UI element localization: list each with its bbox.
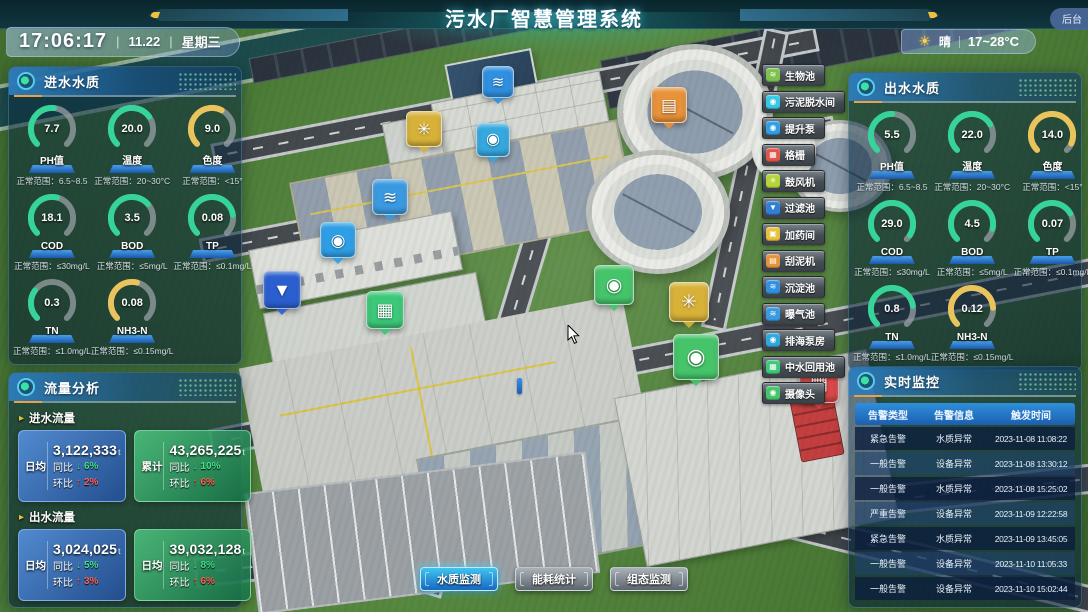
legend-item-sedimentation-pool[interactable]: ≋ 沉淀池 xyxy=(762,276,825,298)
flow-unit: t xyxy=(243,546,245,556)
tab-energy-stats[interactable]: 能耗统计 xyxy=(515,567,593,591)
gauge-tn: 0.8 TN 正常范围：≤1.0mg/L xyxy=(853,282,931,363)
flow-sections: ▸ 进水流量 日均 3,122,333 t 同比 ↓ 6% 环比 ↑ 2% 累计… xyxy=(9,410,241,601)
gauge-ph: 5.5 PH值 正常范围：6.5~8.5 xyxy=(853,108,931,193)
marker-pointer xyxy=(379,329,391,341)
legend-facility-icon: ◉ xyxy=(766,333,780,347)
gauge-dial: 3.5 xyxy=(105,191,159,245)
marker-sedimentation-pool[interactable]: ≋ xyxy=(482,66,514,110)
alarm-time: 2023-11-09 13:45:05 xyxy=(987,534,1075,544)
arrow-up-icon: ↑ xyxy=(192,576,197,587)
legend-item-camera[interactable]: ◉ 摄像头 xyxy=(762,382,825,404)
alarm-info: 水质异常 xyxy=(921,432,987,445)
gauge-value: 29.0 xyxy=(865,197,919,251)
alarm-time: 2023-11-08 13:30:12 xyxy=(987,459,1075,469)
marker-pointer xyxy=(683,322,695,334)
flow-card-tag: 日均 xyxy=(24,558,47,573)
gauge-label: TN xyxy=(885,332,898,343)
legend-label: 沉淀池 xyxy=(785,280,815,295)
legend-item-lift-pump[interactable]: ◉ 提升泵 xyxy=(762,117,825,139)
gauge-label: BOD xyxy=(961,247,983,258)
marker-pointer xyxy=(813,403,825,415)
marker-glyph: ≋ xyxy=(383,189,397,206)
yoy-label: 同比 xyxy=(53,558,73,573)
gauge-chroma: 9.0 色度 正常范围：<15° xyxy=(174,102,252,187)
clock-separator: | xyxy=(169,34,172,49)
legend-item-sea-discharge-pump-house[interactable]: ◉ 排海泵房 xyxy=(762,329,835,351)
legend-label: 曝气池 xyxy=(785,306,815,321)
legend-label: 格栅 xyxy=(785,147,805,162)
mom-value: 6% xyxy=(200,477,214,488)
marker-icon-box: ◉ xyxy=(673,334,719,380)
flow-section-label: ▸ 出水流量 xyxy=(19,509,241,525)
panel-title: 实时监控 xyxy=(884,372,940,391)
legend-item-aeration-pool[interactable]: ≋ 曝气池 xyxy=(762,303,825,325)
gauge-bod: 3.5 BOD 正常范围：≤5mg/L xyxy=(91,191,174,272)
panel-header-icon xyxy=(17,72,35,90)
yoy-value: 10% xyxy=(200,461,220,472)
legend-label: 提升泵 xyxy=(785,121,815,136)
gauge-ph: 7.7 PH值 正常范围：6.5~8.5 xyxy=(13,102,91,187)
gauge-normal-range: 正常范围：20~30°C xyxy=(94,175,170,187)
gauge-value: 0.07 xyxy=(1025,197,1079,251)
legend-facility-icon: ▼ xyxy=(766,201,780,215)
title-wing-right xyxy=(740,9,940,21)
legend-facility-icon: ▣ xyxy=(766,227,780,241)
weather-widget: ☀ 晴 17~28°C xyxy=(901,29,1036,54)
panel-header: 实时监控 xyxy=(849,367,1081,395)
gauge-value: 18.1 xyxy=(25,191,79,245)
legend-facility-icon: ≋ xyxy=(766,307,780,321)
yoy-label: 同比 xyxy=(169,459,189,474)
gauge-dial: 0.08 xyxy=(185,191,239,245)
marker-icon-box: ✳ xyxy=(669,282,709,322)
flow-section: ▸ 进水流量 日均 3,122,333 t 同比 ↓ 6% 环比 ↑ 2% 累计… xyxy=(9,410,241,502)
legend-label: 加药间 xyxy=(785,227,815,242)
gauge-normal-range: 正常范围：≤5mg/L xyxy=(97,260,168,272)
panel-title: 流量分析 xyxy=(44,378,100,397)
gauge-normal-range: 正常范围：<15° xyxy=(182,175,242,187)
panel-header: 出水水质 xyxy=(849,73,1081,101)
gauge-cod: 29.0 COD 正常范围：≤30mg/L xyxy=(853,197,931,278)
mom-value: 6% xyxy=(200,576,214,587)
flow-section-title: 进水流量 xyxy=(29,410,75,426)
marker-icon-box: ◉ xyxy=(476,123,510,157)
legend-label: 生物池 xyxy=(785,68,815,83)
yoy-label: 同比 xyxy=(53,459,73,474)
gauge-value: 22.0 xyxy=(945,108,999,162)
gauge-value: 20.0 xyxy=(105,102,159,156)
flow-card-tag: 日均 xyxy=(24,459,47,474)
marker-pump-2[interactable]: ◉ xyxy=(320,222,356,270)
gauge-value: 4.5 xyxy=(945,197,999,251)
gauge-dial: 0.12 xyxy=(945,282,999,336)
legend-label: 中水回用池 xyxy=(785,359,835,374)
legend-item-water-reuse-pool[interactable]: ▦ 中水回用池 xyxy=(762,356,845,378)
backend-button[interactable]: 后台 xyxy=(1050,8,1088,30)
gauge-cod: 18.1 COD 正常范围：≤30mg/L xyxy=(13,191,91,272)
panel-outlet-quality: 出水水质 5.5 PH值 正常范围：6.5~8.5 22.0 温度 正常范围：2… xyxy=(848,72,1082,371)
gauge-label: 温度 xyxy=(122,152,142,167)
gauge-value: 7.7 xyxy=(25,102,79,156)
yoy-label: 同比 xyxy=(169,558,189,573)
gauge-value: 3.5 xyxy=(105,191,159,245)
flow-unit: t xyxy=(243,447,245,457)
alarm-row[interactable]: 一般告警 水质异常 2023-11-08 15:25:02 xyxy=(855,477,1075,500)
flow-unit: t xyxy=(118,546,120,556)
flow-card-body: 43,265,225 t 同比 ↓ 10% 环比 ↑ 6% xyxy=(163,442,244,490)
marker-icon-box: ≋ xyxy=(482,66,514,98)
gauge-label: NH3-N xyxy=(957,332,988,343)
legend-item-sludge-dewatering-room[interactable]: ◉ 污泥脱水间 xyxy=(762,91,845,113)
flow-stat-card: 日均 3,024,025 t 同比 ↓ 5% 环比 ↑ 3% xyxy=(18,529,126,601)
alarm-time: 2023-11-10 15:02:44 xyxy=(987,584,1075,594)
gauge-normal-range: 正常范围：≤1.0mg/L xyxy=(13,345,91,357)
yoy-value: 8% xyxy=(200,560,214,571)
alarm-type: 一般告警 xyxy=(855,557,921,570)
marker-glyph: ◉ xyxy=(606,276,623,295)
marker-glyph: ≋ xyxy=(492,75,505,90)
gauge-tn: 0.3 TN 正常范围：≤1.0mg/L xyxy=(13,276,91,357)
alarm-type: 一般告警 xyxy=(855,482,921,495)
alarm-row[interactable]: 紧急告警 水质异常 2023-11-08 11:08:22 xyxy=(855,427,1075,450)
panel-title: 进水水质 xyxy=(44,72,100,91)
gauge-value: 14.0 xyxy=(1025,108,1079,162)
arrow-up-icon: ↑ xyxy=(76,576,81,587)
arrow-up-icon: ↑ xyxy=(76,477,81,488)
gauge-tp: 0.08 TP 正常范围：≤0.1mg/L xyxy=(174,191,252,272)
flow-stat-card: 日均 3,122,333 t 同比 ↓ 6% 环比 ↑ 2% xyxy=(18,430,126,502)
outlet-gauge-grid: 5.5 PH值 正常范围：6.5~8.5 22.0 温度 正常范围：20~30°… xyxy=(849,103,1081,370)
alarm-col-type: 告警类型 xyxy=(855,407,921,422)
arrow-up-icon: ↑ xyxy=(192,477,197,488)
alarm-time: 2023-11-08 11:08:22 xyxy=(987,434,1075,444)
mom-label: 环比 xyxy=(53,574,73,589)
flow-card-body: 3,024,025 t 同比 ↓ 5% 环比 ↑ 3% xyxy=(47,541,120,589)
marker-sludge-scraper[interactable]: ▤ xyxy=(651,87,687,135)
legend-item-blower[interactable]: ✳ 鼓风机 xyxy=(762,170,825,192)
legend-label: 鼓风机 xyxy=(785,174,815,189)
panel-header-icon xyxy=(857,372,875,390)
alarm-row[interactable]: 严重告警 设备异常 2023-11-09 12:22:58 xyxy=(855,502,1075,525)
flow-cards-row: 日均 3,122,333 t 同比 ↓ 6% 环比 ↑ 2% 累计 43,265… xyxy=(9,430,241,502)
legend-item-sludge-scraper[interactable]: ▤ 刮泥机 xyxy=(762,250,825,272)
marker-blower-2[interactable]: ✳ xyxy=(669,282,709,334)
marker-glyph: ▤ xyxy=(661,97,677,114)
gauge-nh3n: 0.12 NH3-N 正常范围：≤0.15mg/L xyxy=(931,282,1014,363)
gauge-temperature: 20.0 温度 正常范围：20~30°C xyxy=(91,102,174,187)
gauge-nh3n: 0.08 NH3-N 正常范围：≤0.15mg/L xyxy=(91,276,174,357)
marker-pointer xyxy=(487,157,499,169)
marker-glyph: ✳ xyxy=(417,121,431,138)
tab-water-quality-monitor[interactable]: 水质监测 xyxy=(420,567,498,591)
gauge-value: 0.8 xyxy=(865,282,919,336)
legend-facility-icon: ≋ xyxy=(766,280,780,294)
alarm-time: 2023-11-08 15:25:02 xyxy=(987,484,1075,494)
gauge-dial: 5.5 xyxy=(865,108,919,162)
flow-value: 3,122,333 xyxy=(53,442,117,458)
flow-card-tag: 累计 xyxy=(140,459,163,474)
panel-realtime-monitor: 实时监控 告警类型 告警信息 触发时间 紧急告警 水质异常 2023-11-08… xyxy=(848,366,1082,608)
gauge-dial: 14.0 xyxy=(1025,108,1079,162)
alarm-row[interactable]: 紧急告警 水质异常 2023-11-09 13:45:05 xyxy=(855,527,1075,550)
gauge-dial: 29.0 xyxy=(865,197,919,251)
flow-section-title: 出水流量 xyxy=(29,509,75,525)
weather-divider xyxy=(959,36,960,48)
gauge-value: 5.5 xyxy=(865,108,919,162)
gauge-bod: 4.5 BOD 正常范围：≤5mg/L xyxy=(931,197,1014,278)
gauge-normal-range: 正常范围：≤30mg/L xyxy=(854,266,930,278)
gauge-normal-range: 正常范围：≤5mg/L xyxy=(937,266,1008,278)
gauge-label: TN xyxy=(45,326,58,337)
alarm-info: 设备异常 xyxy=(921,457,987,470)
triangle-bullet-icon: ▸ xyxy=(19,413,24,424)
yoy-value: 5% xyxy=(84,560,98,571)
flow-stat-card: 累计 43,265,225 t 同比 ↓ 10% 环比 ↑ 6% xyxy=(134,430,250,502)
gauge-label: 色度 xyxy=(1042,158,1062,173)
gauge-normal-range: 正常范围：≤0.1mg/L xyxy=(1014,266,1088,278)
flow-value: 39,032,128 xyxy=(169,541,241,557)
alarm-info: 设备异常 xyxy=(921,582,987,595)
gauge-dial: 18.1 xyxy=(25,191,79,245)
flow-value: 43,265,225 xyxy=(169,442,241,458)
gauge-value: 0.3 xyxy=(25,276,79,330)
gauge-chroma: 14.0 色度 正常范围：<15° xyxy=(1014,108,1088,193)
marker-pointer xyxy=(418,147,430,159)
clock-separator: | xyxy=(116,34,119,49)
marker-glyph: ◉ xyxy=(486,132,500,148)
arrow-down-icon: ↓ xyxy=(76,461,81,472)
gauge-normal-range: 正常范围：6.5~8.5 xyxy=(856,181,927,193)
marker-glyph: ▦ xyxy=(376,301,393,319)
alarm-row[interactable]: 一般告警 设备异常 2023-11-10 11:05:33 xyxy=(855,552,1075,575)
alarm-info: 设备异常 xyxy=(921,507,987,520)
gauge-dial: 20.0 xyxy=(105,102,159,156)
bottom-tab-bar: 水质监测 能耗统计 组态监测 xyxy=(420,567,688,591)
page-title: 污水厂智慧管理系统 xyxy=(445,3,643,32)
legend-label: 刮泥机 xyxy=(785,253,815,268)
clock-widget: 17:06:17 | 11.22 | 星期三 xyxy=(6,27,240,57)
panel-title: 出水水质 xyxy=(884,78,940,97)
panel-header-icon xyxy=(857,78,875,96)
alarm-row[interactable]: 一般告警 设备异常 2023-11-08 13:30:12 xyxy=(855,452,1075,475)
alarm-row[interactable]: 一般告警 设备异常 2023-11-10 15:02:44 xyxy=(855,577,1075,600)
gauge-dial: 0.3 xyxy=(25,276,79,330)
alarm-type: 一般告警 xyxy=(855,582,921,595)
gauge-label: TP xyxy=(206,241,219,252)
alarm-table-header: 告警类型 告警信息 触发时间 xyxy=(855,403,1075,425)
marker-filter-pool[interactable]: ▼ xyxy=(263,271,301,321)
gauge-dial: 0.08 xyxy=(105,276,159,330)
gauge-normal-range: 正常范围：≤0.1mg/L xyxy=(174,260,252,272)
legend-item-biological-pool[interactable]: ≋ 生物池 xyxy=(762,64,825,86)
legend-facility-icon: ▤ xyxy=(766,254,780,268)
marker-icon-box: ◉ xyxy=(594,265,634,305)
legend-facility-icon: ◉ xyxy=(766,95,780,109)
gauge-normal-range: 正常范围：≤0.15mg/L xyxy=(91,345,174,357)
gauge-dial: 0.07 xyxy=(1025,197,1079,251)
panel-header-icon xyxy=(17,378,35,396)
legend-item-bar-screen[interactable]: ▦ 格栅 xyxy=(762,144,815,166)
gauge-dial: 4.5 xyxy=(945,197,999,251)
flow-section-label: ▸ 进水流量 xyxy=(19,410,241,426)
gauge-normal-range: 正常范围：≤30mg/L xyxy=(14,260,90,272)
bottom-tab-label: 能耗统计 xyxy=(532,574,576,586)
mom-label: 环比 xyxy=(169,475,189,490)
legend-item-filter-pool[interactable]: ▼ 过滤池 xyxy=(762,197,825,219)
legend-facility-icon: ≋ xyxy=(766,68,780,82)
panel-header-underline xyxy=(14,401,236,403)
mom-label: 环比 xyxy=(53,475,73,490)
mom-label: 环比 xyxy=(169,574,189,589)
panel-header-underline xyxy=(854,395,1076,397)
alarm-type: 紧急告警 xyxy=(855,432,921,445)
marker-aeration-pool[interactable]: ≋ xyxy=(372,179,408,227)
marker-icon-box: ≋ xyxy=(372,179,408,215)
alarm-info: 设备异常 xyxy=(921,557,987,570)
gauge-label: COD xyxy=(881,247,903,258)
gauge-normal-range: 正常范围：<15° xyxy=(1022,181,1082,193)
arrow-down-icon: ↓ xyxy=(192,560,197,571)
gauge-normal-range: 正常范围：6.5~8.5 xyxy=(16,175,87,187)
weather-temp-range: 17~28°C xyxy=(968,34,1019,49)
gauge-label: NH3-N xyxy=(117,326,148,337)
sun-icon: ☀ xyxy=(918,33,931,50)
flow-stat-card: 日均 39,032,128 t 同比 ↓ 8% 环比 ↑ 6% xyxy=(134,529,250,601)
legend-facility-icon: ◉ xyxy=(766,386,780,400)
marker-icon-box: ◉ xyxy=(320,222,356,258)
gauge-normal-range: 正常范围：≤1.0mg/L xyxy=(853,351,931,363)
gauge-tp: 0.07 TP 正常范围：≤0.1mg/L xyxy=(1014,197,1088,278)
marker-pointer xyxy=(608,305,620,317)
legend-facility-icon: ▦ xyxy=(766,148,780,162)
alarm-col-time: 触发时间 xyxy=(987,407,1075,422)
gauge-label: 色度 xyxy=(202,152,222,167)
gauge-temperature: 22.0 温度 正常范围：20~30°C xyxy=(931,108,1014,193)
gauge-label: PH值 xyxy=(880,158,904,173)
tab-scada-monitor[interactable]: 组态监测 xyxy=(610,567,688,591)
mom-value: 2% xyxy=(84,477,98,488)
marker-pointer xyxy=(332,258,344,270)
gauge-normal-range: 正常范围：20~30°C xyxy=(934,181,1010,193)
marker-icon-box: ▤ xyxy=(651,87,687,123)
gauge-value: 0.12 xyxy=(945,282,999,336)
flow-cards-row: 日均 3,024,025 t 同比 ↓ 5% 环比 ↑ 3% 日均 39,032… xyxy=(9,529,241,601)
gauge-dial: 7.7 xyxy=(25,102,79,156)
marker-glyph: ◉ xyxy=(686,346,705,368)
inlet-gauge-grid: 7.7 PH值 正常范围：6.5~8.5 20.0 温度 正常范围：20~30°… xyxy=(9,97,241,364)
flow-card-body: 3,122,333 t 同比 ↓ 6% 环比 ↑ 2% xyxy=(47,442,120,490)
alarm-type: 严重告警 xyxy=(855,507,921,520)
gauge-dial: 9.0 xyxy=(185,102,239,156)
alarm-time: 2023-11-09 12:22:58 xyxy=(987,509,1075,519)
legend-label: 过滤池 xyxy=(785,200,815,215)
alarm-time: 2023-11-10 11:05:33 xyxy=(987,559,1075,569)
clock-time: 17:06:17 xyxy=(19,30,107,53)
marker-icon-box: ▦ xyxy=(366,291,404,329)
triangle-bullet-icon: ▸ xyxy=(19,512,24,523)
gauge-label: COD xyxy=(41,241,63,252)
flow-value: 3,024,025 xyxy=(53,541,117,557)
alarm-info: 水质异常 xyxy=(921,532,987,545)
gauge-label: TP xyxy=(1046,247,1059,258)
marker-icon-box: ✳ xyxy=(406,111,442,147)
gauge-value: 0.08 xyxy=(105,276,159,330)
marker-lift-pump[interactable]: ◉ xyxy=(476,123,510,169)
marker-camera-2[interactable]: ◉ xyxy=(673,334,719,392)
title-wing-left xyxy=(148,9,348,21)
flow-section: ▸ 出水流量 日均 3,024,025 t 同比 ↓ 5% 环比 ↑ 3% 日均… xyxy=(9,509,241,601)
arrow-down-icon: ↓ xyxy=(192,461,197,472)
gauge-label: 温度 xyxy=(962,158,982,173)
marker-water-reuse-pool[interactable]: ▦ xyxy=(366,291,404,341)
gauge-dial: 22.0 xyxy=(945,108,999,162)
gauge-label: BOD xyxy=(121,241,143,252)
marker-pointer xyxy=(276,309,288,321)
arrow-down-icon: ↓ xyxy=(76,560,81,571)
panel-header: 流量分析 xyxy=(9,373,241,401)
flow-card-tag: 日均 xyxy=(140,558,163,573)
dashboard: ≋ ✳ ◉ ▤ ≋ ◉ ▼ ▦ ◉ ✳ ◉ ▦ xyxy=(0,0,1088,612)
marker-icon-box: ▼ xyxy=(263,271,301,309)
facility-legend: ≋ 生物池 ◉ 污泥脱水间 ◉ 提升泵 ▦ 格栅 ✳ 鼓风机 ▼ 过滤池 ▣ 加… xyxy=(762,64,845,404)
alarm-type: 一般告警 xyxy=(855,457,921,470)
gauge-value: 9.0 xyxy=(185,102,239,156)
mom-value: 3% xyxy=(84,576,98,587)
alarm-type: 紧急告警 xyxy=(855,532,921,545)
legend-label: 排海泵房 xyxy=(785,333,825,348)
legend-item-dosing-room[interactable]: ▣ 加药间 xyxy=(762,223,825,245)
alarm-info: 水质异常 xyxy=(921,482,987,495)
marker-pointer xyxy=(663,123,675,135)
marker-pointer xyxy=(384,215,396,227)
alarm-table-body: 紧急告警 水质异常 2023-11-08 11:08:22 一般告警 设备异常 … xyxy=(855,427,1075,600)
clock-date: 11.22 xyxy=(128,34,160,49)
gauge-label: PH值 xyxy=(40,152,64,167)
flow-unit: t xyxy=(118,447,120,457)
bottom-tab-label: 组态监测 xyxy=(627,574,671,586)
marker-camera-1[interactable]: ◉ xyxy=(594,265,634,317)
alarm-col-info: 告警信息 xyxy=(921,407,987,422)
marker-pointer xyxy=(492,98,504,110)
panel-flow-analysis: 流量分析 ▸ 进水流量 日均 3,122,333 t 同比 ↓ 6% 环比 ↑ … xyxy=(8,372,242,608)
legend-facility-icon: ✳ xyxy=(766,174,780,188)
legend-label: 摄像头 xyxy=(785,386,815,401)
marker-blower-1[interactable]: ✳ xyxy=(406,111,442,159)
marker-glyph: ▼ xyxy=(273,281,291,299)
clock-weekday: 星期三 xyxy=(182,32,221,51)
legend-facility-icon: ▦ xyxy=(766,360,780,374)
yoy-value: 6% xyxy=(84,461,98,472)
panel-inlet-quality: 进水水质 7.7 PH值 正常范围：6.5~8.5 20.0 温度 正常范围：2… xyxy=(8,66,242,365)
gauge-dial: 0.8 xyxy=(865,282,919,336)
legend-facility-icon: ◉ xyxy=(766,121,780,135)
marker-glyph: ✳ xyxy=(681,293,697,312)
marker-glyph: ◉ xyxy=(331,232,346,249)
gauge-normal-range: 正常范围：≤0.15mg/L xyxy=(931,351,1014,363)
panel-header: 进水水质 xyxy=(9,67,241,95)
weather-condition: 晴 xyxy=(939,33,951,50)
flow-card-body: 39,032,128 t 同比 ↓ 8% 环比 ↑ 6% xyxy=(163,541,244,589)
gauge-value: 0.08 xyxy=(185,191,239,245)
legend-label: 污泥脱水间 xyxy=(785,94,835,109)
marker-pointer xyxy=(690,380,702,392)
bottom-tab-label: 水质监测 xyxy=(437,574,481,586)
